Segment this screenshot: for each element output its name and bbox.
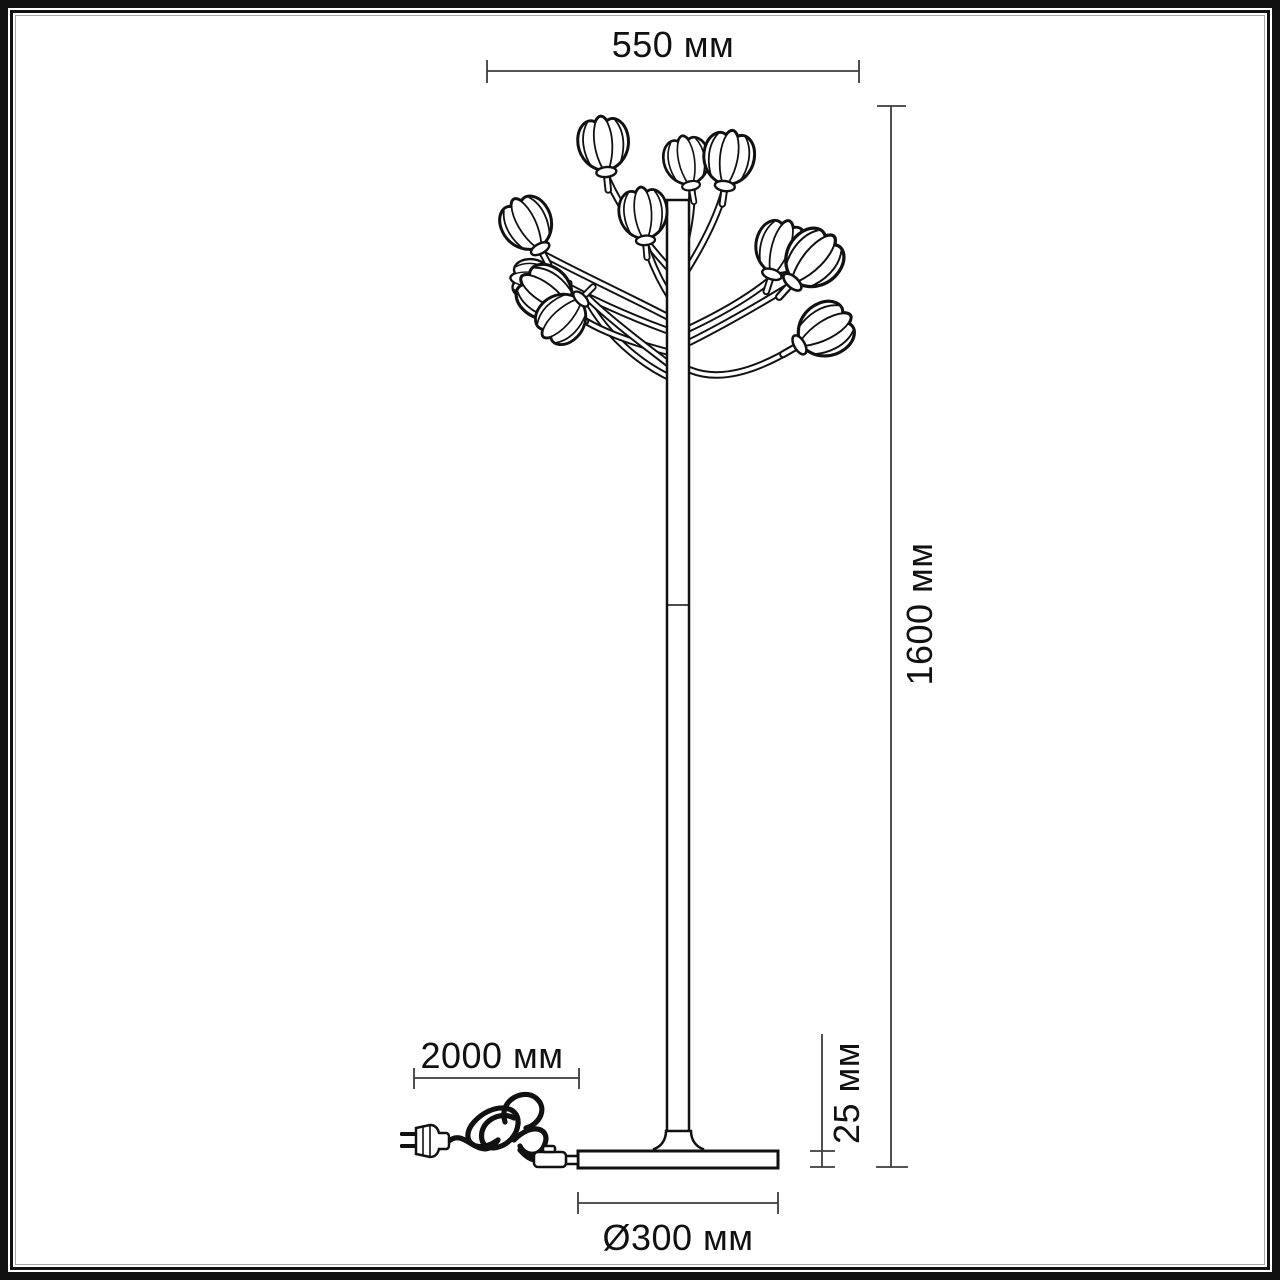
floor-lamp-diagram-svg	[0, 0, 1280, 1280]
lamp-base	[559, 1151, 778, 1168]
dim-label-base-diameter: Ø300 мм	[602, 1217, 753, 1259]
dim-label-base-height: 25 мм	[826, 1042, 868, 1144]
dim-label-cord-length: 2000 мм	[420, 1035, 563, 1077]
technical-drawing-canvas: 550 мм 1600 мм 2000 мм 25 мм Ø300 мм	[0, 0, 1280, 1280]
dim-label-top-width: 550 мм	[612, 24, 735, 66]
dimension-line-base-diameter	[578, 1192, 778, 1214]
pole-foot-flare	[654, 1131, 703, 1151]
dim-label-height: 1600 мм	[899, 542, 941, 685]
power-plug-icon	[400, 1125, 449, 1157]
switch-button	[543, 1146, 555, 1152]
